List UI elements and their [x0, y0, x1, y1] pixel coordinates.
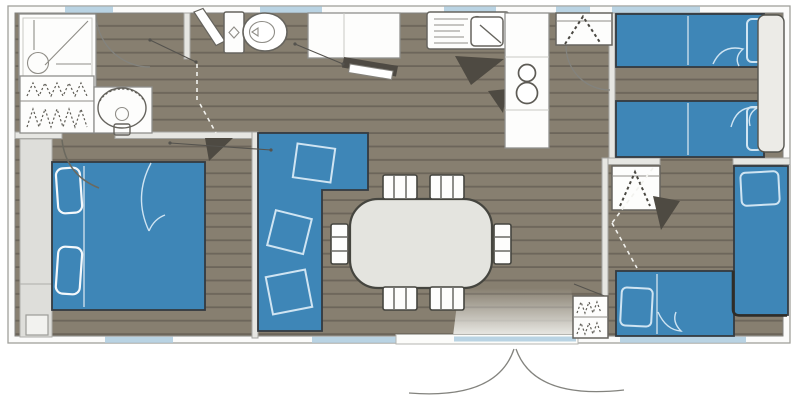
window-top-1 — [65, 7, 113, 13]
kitchen-counter — [308, 13, 400, 58]
dining-chair — [494, 224, 511, 264]
dining-chair — [430, 175, 464, 199]
toilet-cistern — [224, 12, 244, 53]
dining-chair — [430, 287, 464, 310]
wardrobe — [612, 166, 660, 210]
single-bed-2 — [616, 101, 764, 157]
dining-table — [350, 199, 492, 288]
washbasin — [94, 87, 152, 135]
wall-rooms-mid-left — [602, 158, 660, 165]
double-bed — [52, 162, 205, 310]
window-bottom-2 — [312, 337, 396, 343]
window-bottom-3 — [620, 337, 746, 343]
window-top-2 — [260, 7, 322, 13]
hob-burner-icon — [517, 83, 538, 104]
hob-burner-icon — [519, 65, 536, 82]
wall-wc-stub — [184, 13, 190, 59]
sink-unit — [427, 12, 509, 49]
dining-chair — [331, 224, 348, 264]
tall-counter — [505, 13, 549, 148]
dining-chair — [383, 287, 417, 310]
headboard-shelf — [758, 15, 784, 152]
single-bed-1 — [616, 14, 764, 67]
window-bottom-1 — [105, 337, 173, 343]
entrance-light-wedge — [453, 288, 577, 336]
floor-plan — [0, 0, 800, 401]
window-top-4 — [556, 7, 590, 13]
toilet — [224, 12, 287, 53]
wardrobe-band — [20, 139, 52, 337]
storage-shelves — [20, 76, 94, 133]
entrance-glazing — [454, 337, 576, 342]
window-top-5 — [612, 7, 700, 13]
nightstand — [26, 315, 48, 335]
wardrobe — [556, 13, 612, 45]
dining-chair — [383, 175, 417, 199]
wall-rooms-mid-right — [733, 158, 790, 165]
